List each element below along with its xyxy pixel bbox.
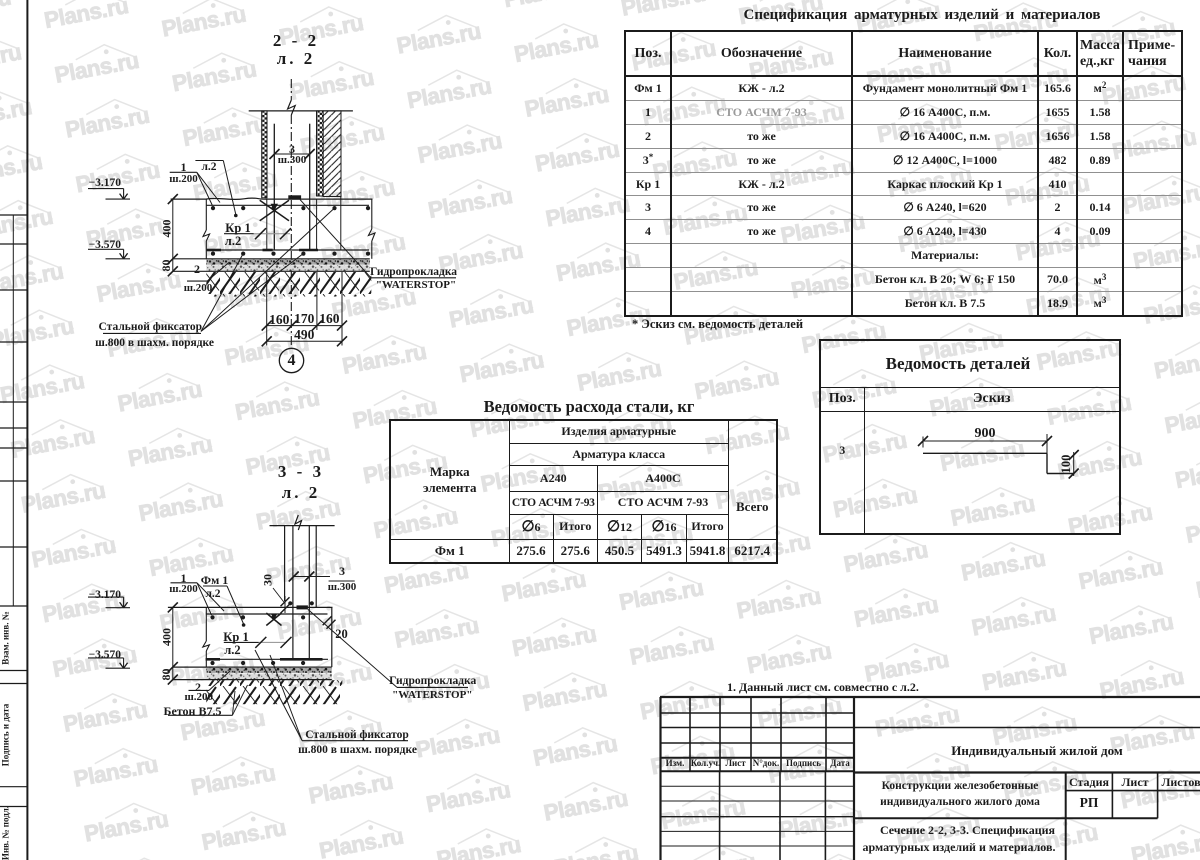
- svg-text:400: 400: [160, 220, 174, 238]
- svg-text:80: 80: [159, 260, 173, 272]
- svg-text:Подпись и дата: Подпись и дата: [1, 703, 11, 766]
- svg-text:80: 80: [159, 669, 173, 681]
- svg-text:Инв. № подл.: Инв. № подл.: [1, 806, 11, 860]
- svg-text:400: 400: [160, 628, 174, 646]
- svg-text:100: 100: [1059, 455, 1073, 474]
- svg-text:30: 30: [260, 574, 274, 586]
- svg-text:Взам. инв. №: Взам. инв. №: [1, 611, 11, 665]
